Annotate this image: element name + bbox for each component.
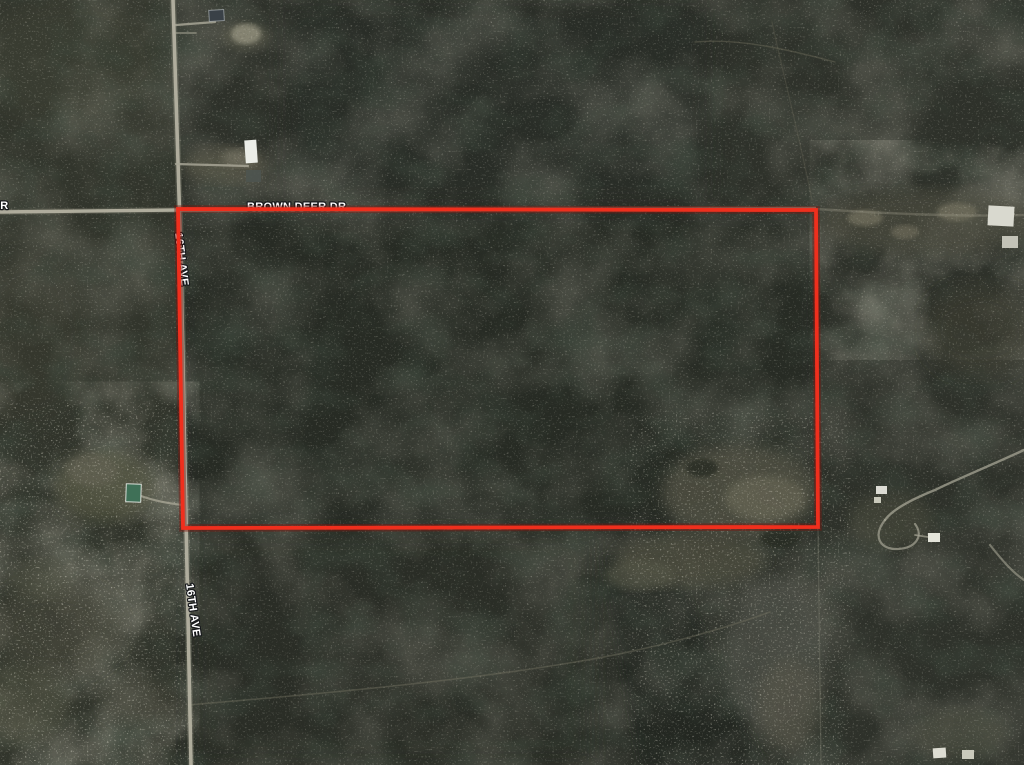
building-bottom-right-1 — [933, 748, 947, 759]
map-canvas[interactable]: DR BROWN DEER DR 16TH AVE 16TH AVE — [0, 0, 1024, 765]
building-green-roof-house — [126, 484, 142, 503]
building-gray — [246, 170, 261, 182]
building-north-roof — [209, 10, 225, 22]
building-right-2 — [928, 533, 940, 542]
building-right-edge-2 — [1002, 236, 1018, 248]
building-white-shed — [244, 140, 258, 164]
forest-speckle-texture — [0, 0, 1024, 765]
road-label-dr-fragment: DR — [0, 200, 9, 212]
satellite-map: DR BROWN DEER DR 16TH AVE 16TH AVE — [0, 0, 1024, 765]
building-right-edge-1 — [987, 205, 1014, 226]
building-right-1 — [876, 486, 887, 494]
building-bottom-right-2 — [962, 750, 974, 759]
